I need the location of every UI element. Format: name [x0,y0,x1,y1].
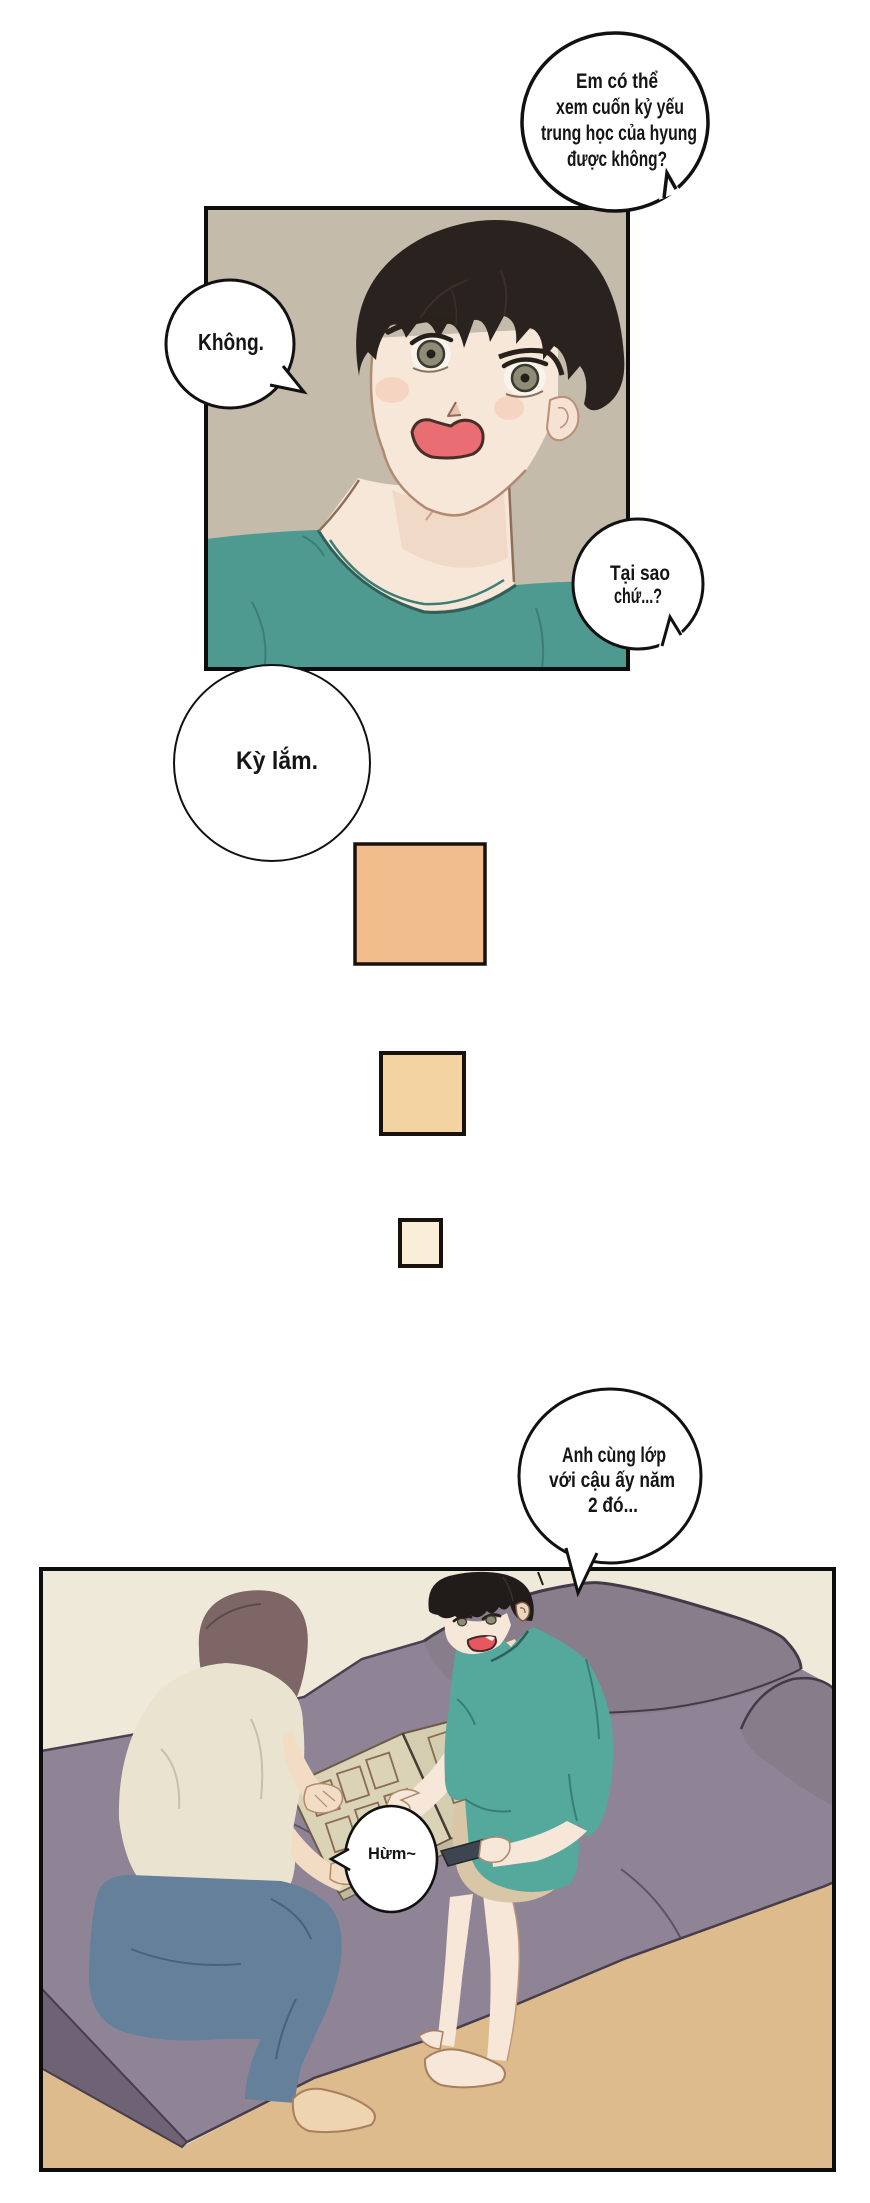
svg-text:Tại sao: Tại sao [610,562,670,585]
svg-text:với cậu ấy năm: với cậu ấy năm [549,1469,675,1492]
svg-text:Anh cùng lớp: Anh cùng lớp [562,1444,666,1467]
svg-text:Không.: Không. [198,329,264,355]
svg-text:trung học của hyung: trung học của hyung [541,122,697,145]
svg-text:xem cuốn kỷ yếu: xem cuốn kỷ yếu [556,96,684,119]
svg-text:2 đó...: 2 đó... [588,1494,638,1517]
svg-text:Em có thể: Em có thể [576,70,658,93]
svg-text:được không?: được không? [567,148,667,171]
svg-text:chứ...?: chứ...? [614,585,662,608]
svg-text:Kỳ lắm.: Kỳ lắm. [236,745,318,775]
svg-text:Hừm~: Hừm~ [368,1844,416,1863]
